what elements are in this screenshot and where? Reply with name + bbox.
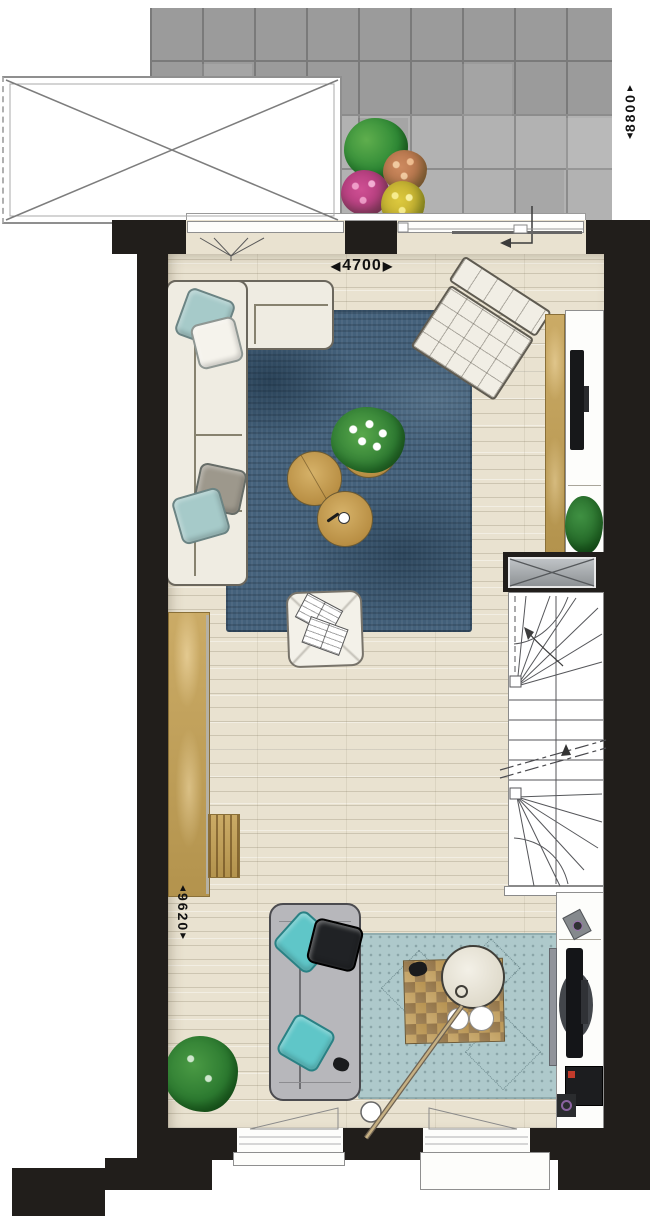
wall-ext-right — [558, 1158, 650, 1190]
staircase — [508, 592, 604, 886]
stool — [469, 1006, 494, 1031]
sofa-seam — [194, 434, 242, 436]
wall-bottom-middle — [343, 1128, 423, 1160]
sliding-door-frame — [398, 221, 584, 233]
arrow-down: ▼ — [625, 132, 635, 141]
arrow-left: ◀ — [331, 259, 341, 273]
wall-ext-left-2 — [12, 1168, 105, 1216]
dimension-width-value: 4700 — [342, 257, 382, 275]
wall-top-left — [112, 220, 186, 254]
dimension-terrace-value: 8800 — [622, 93, 638, 132]
wall-right — [604, 252, 650, 1160]
tv-upper-mount — [584, 386, 589, 412]
window-right-sill — [420, 1152, 550, 1190]
floor-plan: ▲ 8800 ▼ — [0, 0, 650, 1226]
arrow-up: ▲ — [625, 84, 635, 93]
cabinet-divider — [568, 485, 601, 486]
wall-top-right — [586, 220, 650, 254]
dimension-depth-value: 9620 — [175, 893, 191, 932]
wall-ext-left-1 — [105, 1158, 212, 1190]
speaker-cone — [571, 919, 585, 933]
chair-slatted — [208, 814, 240, 878]
wall-bottom-left — [137, 1128, 237, 1160]
wall-top-middle — [345, 220, 397, 254]
speaker — [557, 1094, 576, 1117]
stool — [447, 1008, 469, 1030]
floor-plant — [164, 1036, 238, 1112]
cabinet-divider — [559, 939, 601, 940]
soundbar — [549, 948, 557, 1066]
shaft-box — [508, 557, 596, 588]
arrow-down: ▼ — [178, 932, 188, 941]
coffee-table-tray — [317, 491, 373, 547]
tv-lower-mount — [581, 980, 588, 1024]
coffee-table-plant — [331, 407, 405, 473]
window-left-sill — [233, 1152, 345, 1166]
cabinet-plant — [565, 496, 603, 554]
sofa-seam — [254, 304, 328, 306]
power-light — [568, 1071, 575, 1078]
sofa-seam — [279, 1082, 351, 1083]
dimension-room-depth: ▲ 9620 ▼ — [170, 884, 196, 1010]
side-table-wood — [168, 612, 210, 897]
speaker-cone — [561, 1100, 572, 1111]
table-ring-detail — [455, 985, 468, 998]
tile-variation — [566, 118, 616, 170]
folding-door-frame — [187, 221, 344, 233]
arrow-up: ▲ — [178, 884, 188, 893]
dimension-room-width: ◀ 4700 ▶ — [331, 257, 393, 275]
sofa-seam — [254, 304, 256, 344]
dimension-terrace-depth: ▲ 8800 ▼ — [612, 84, 648, 214]
wall-left — [137, 252, 168, 1160]
teapot — [338, 512, 350, 524]
tv-upper — [570, 350, 584, 450]
round-table — [441, 945, 505, 1009]
arrow-right: ▶ — [383, 259, 393, 273]
canopy-roof — [2, 76, 342, 224]
tv-bench-wood — [545, 314, 565, 554]
tile-variation — [462, 64, 512, 116]
